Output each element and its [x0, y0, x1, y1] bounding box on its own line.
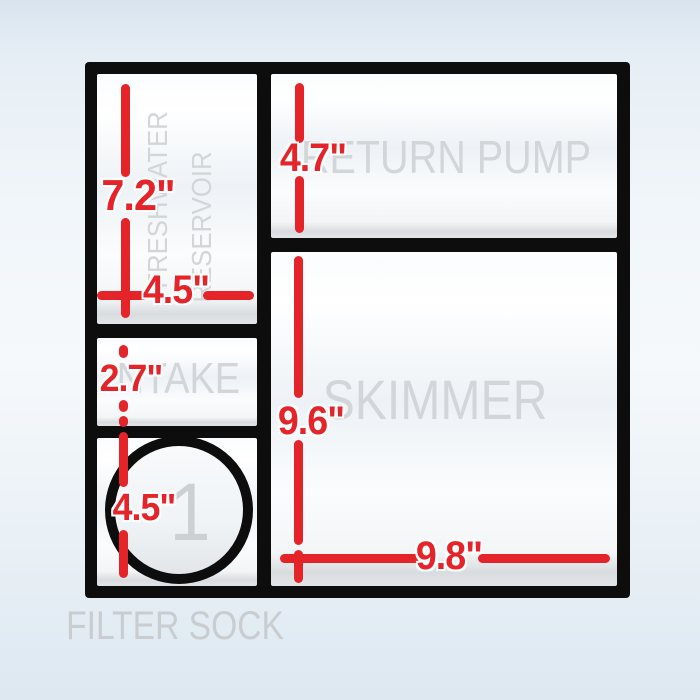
- dimension-label-skimmer-width: 9.8": [416, 536, 482, 576]
- dimension-label-return-pump-height: 4.7": [280, 138, 346, 178]
- dim-line-freshwater-width-left: [97, 291, 148, 300]
- dim-line-skimmer-width-left: [280, 554, 420, 563]
- dim-line-freshwater-height-bottom: [121, 218, 130, 318]
- sump-layout-diagram: FRESHWATER RESERVOIR INTAKE 1 RETURN PUM…: [0, 0, 700, 700]
- dim-line-intake-top: [119, 345, 128, 358]
- dim-line-freshwater-height-top: [121, 84, 130, 177]
- dim-line-skimmer-width-right: [478, 554, 610, 563]
- dim-line-hole-bottom: [119, 530, 128, 578]
- dim-line-return-pump-bottom: [295, 176, 304, 233]
- skimmer-label: SKIMMER: [323, 372, 548, 428]
- dimension-label-hole-diameter: 4.5": [113, 489, 176, 527]
- dimension-label-intake-height: 2.7": [100, 360, 163, 398]
- dim-line-intake-bottom-2: [119, 416, 128, 427]
- dim-line-hole-top: [119, 432, 128, 487]
- dimension-label-skimmer-height: 9.6": [278, 401, 344, 441]
- filter-sock-label: FILTER SOCK: [66, 606, 284, 646]
- hole-number-label: 1: [169, 472, 210, 554]
- dim-line-freshwater-width-right: [203, 291, 254, 300]
- dim-line-intake-bottom-1: [119, 400, 128, 412]
- dimension-label-freshwater-height: 7.2": [101, 174, 174, 218]
- dimension-label-freshwater-width: 4.5": [143, 270, 209, 310]
- dim-line-return-pump-top: [295, 83, 304, 143]
- dim-line-skimmer-height-top: [294, 256, 303, 398]
- dim-line-skimmer-height-mid: [294, 440, 303, 545]
